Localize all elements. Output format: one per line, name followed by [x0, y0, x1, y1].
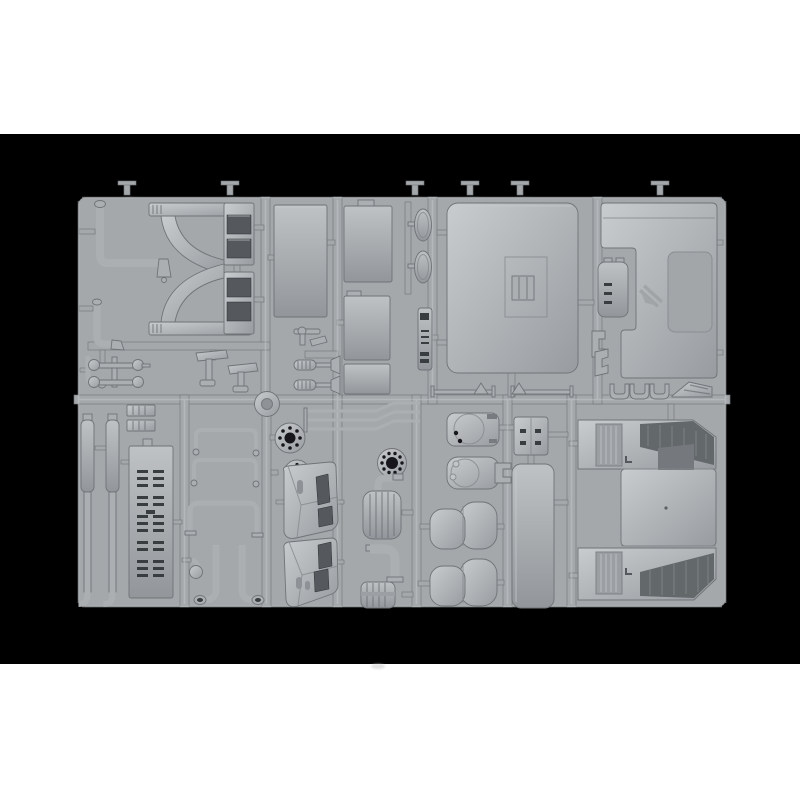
part-panel-c: [344, 364, 390, 394]
part-tank-cover-1: [447, 413, 499, 446]
part-flange-large: [275, 423, 305, 453]
part-ribbed-drum: [361, 582, 395, 608]
sprue-gate-stubs: [118, 181, 669, 195]
part-dash-upper: [284, 462, 339, 538]
part-side-panel: [274, 205, 327, 317]
sprue: [74, 181, 730, 608]
part-bunk-panel: [512, 464, 554, 608]
sprue-illustration: [0, 0, 800, 800]
part-seat-1: [430, 502, 497, 549]
part-hatch-door: [598, 258, 628, 317]
part-ribbed-strip: [418, 308, 432, 370]
part-hub-disc: [255, 392, 280, 417]
part-panel-b: [344, 291, 390, 360]
part-panel-a: [344, 200, 392, 282]
part-deck-plate: [129, 439, 173, 598]
product-photo: [0, 0, 800, 800]
part-equipment-box: [514, 417, 548, 455]
part-bolt-ring: [378, 449, 407, 478]
part-cab-roof: [447, 203, 578, 373]
part-seat-2: [430, 559, 497, 606]
sunroof-latch: [512, 276, 534, 300]
